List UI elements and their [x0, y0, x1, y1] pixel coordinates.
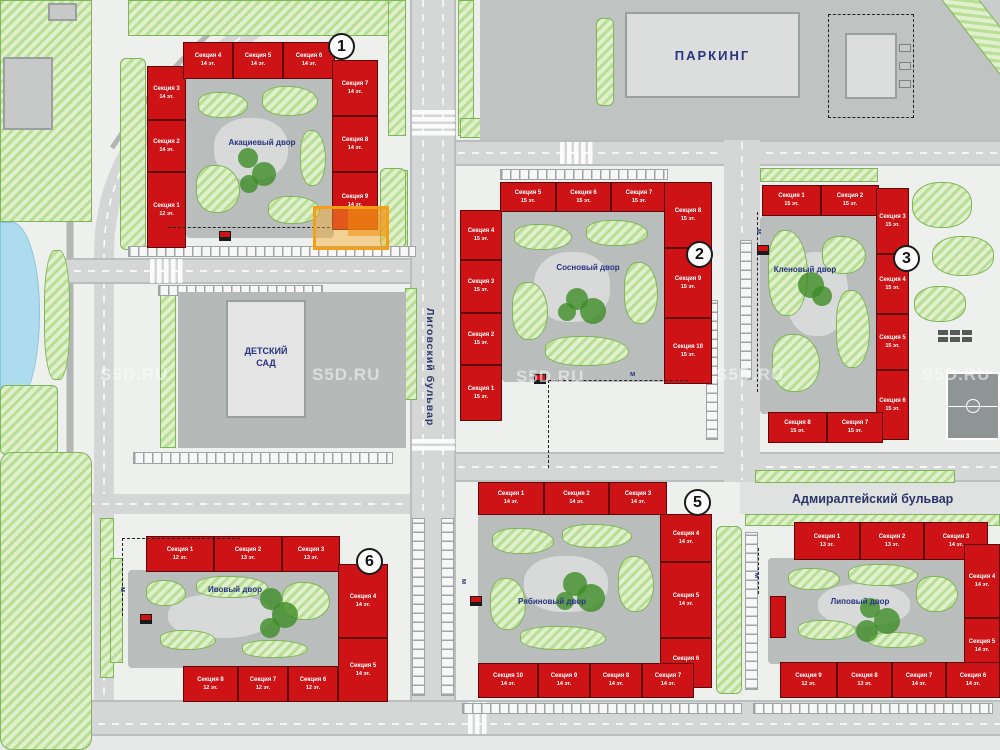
section-floors: 14 эт. — [609, 681, 623, 688]
green-area — [0, 452, 92, 750]
green-area — [492, 528, 554, 554]
section-name: Секция 3 — [879, 214, 906, 222]
building-badge[interactable]: 6 — [356, 548, 383, 575]
building-section[interactable]: Секция 315 эт. — [460, 260, 502, 313]
section-floors: 14 эт. — [966, 681, 980, 688]
green-area — [618, 556, 654, 612]
section-floors: 15 эт. — [790, 428, 804, 435]
section-floors: 15 эт. — [784, 201, 798, 208]
building-badge[interactable]: 1 — [328, 33, 355, 60]
parking-stalls — [441, 518, 454, 696]
section-floors: 13 эт. — [857, 681, 871, 688]
section-name: Секция 5 — [350, 663, 377, 671]
gate-mark: м — [753, 573, 760, 578]
section-name: Секция 1 — [167, 547, 194, 555]
section-floors: 13 эт. — [820, 542, 834, 549]
building-section[interactable]: Секция 714 эт. — [892, 662, 946, 698]
green-area — [120, 58, 146, 250]
green-area — [128, 0, 390, 36]
section-floors: 13 эт. — [241, 555, 255, 562]
green-area — [44, 250, 70, 380]
building-section[interactable]: Секция 514 эт. — [338, 638, 388, 702]
section-floors: 15 эт. — [681, 216, 695, 223]
building-section[interactable]: Секция 814 эт. — [332, 116, 378, 172]
building-section[interactable]: Секция 515 эт. — [876, 314, 909, 370]
green-area — [932, 236, 994, 276]
existing-building — [48, 3, 77, 21]
section-floors: 15 эт. — [681, 284, 695, 291]
master-plan-map: ПАРКИНГ ДЕТСКИЙ САД Акациевый двор Секци… — [0, 0, 1000, 750]
section-floors: 15 эт. — [843, 201, 857, 208]
section-name: Секция 9 — [675, 276, 702, 284]
courtyard-label: Акациевый двор — [222, 138, 302, 148]
building-section[interactable]: Секция 213 эт. — [214, 536, 282, 572]
section-floors: 15 эт. — [885, 285, 899, 292]
section-name: Секция 2 — [468, 332, 495, 340]
section-name: Секция 5 — [515, 190, 542, 198]
section-name: Секция 6 — [296, 53, 323, 61]
building-section[interactable]: Секция 515 эт. — [500, 182, 556, 212]
building-section[interactable]: Секция 614 эт. — [946, 662, 1000, 698]
green-area — [388, 0, 406, 136]
section-floors: 14 эт. — [912, 681, 926, 688]
building-section[interactable]: Секция 514 эт. — [233, 42, 283, 79]
green-area — [242, 640, 308, 658]
watermark: S5D.RU — [100, 365, 168, 385]
section-floors: 14 эт. — [348, 89, 362, 96]
section-floors: 15 эт. — [885, 406, 899, 413]
section-floors: 14 эт. — [348, 145, 362, 152]
section-floors: 15 эт. — [632, 198, 646, 205]
section-floors: 12 эт. — [801, 681, 815, 688]
tree-icon — [260, 618, 280, 638]
section-name: Секция 5 — [673, 593, 700, 601]
green-area — [914, 286, 966, 322]
section-name: Секция 7 — [906, 673, 933, 681]
green-area — [198, 92, 248, 118]
parking-stalls — [745, 532, 758, 690]
building-section[interactable]: Секция 414 эт. — [964, 544, 1000, 618]
section-name: Секция 10 — [673, 344, 703, 352]
section-name: Секция 7 — [842, 420, 869, 428]
building-section[interactable]: Секция 813 эт. — [837, 662, 892, 698]
building-section-stub[interactable] — [770, 596, 786, 638]
building-section[interactable]: Секция 612 эт. — [288, 666, 338, 702]
building-badge[interactable]: 3 — [893, 245, 920, 272]
green-area — [458, 0, 474, 136]
green-area — [912, 182, 972, 228]
section-floors: 14 эт. — [631, 499, 645, 506]
building-section[interactable]: Секция 314 эт. — [147, 66, 186, 120]
section-name: Секция 4 — [969, 574, 996, 582]
section-name: Секция 9 — [342, 194, 369, 202]
building-section[interactable]: Секция 714 эт. — [642, 663, 694, 698]
substation — [757, 245, 769, 255]
section-floors: 13 эт. — [304, 555, 318, 562]
site-boundary — [548, 380, 549, 468]
section-floors: 14 эт. — [949, 542, 963, 549]
parking-stalls — [740, 240, 752, 380]
courtyard-label: Липовый двор — [822, 597, 898, 607]
section-name: Секция 10 — [493, 673, 523, 681]
green-area — [716, 526, 742, 694]
building-section[interactable]: Секция 112 эт. — [146, 536, 214, 572]
section-name: Секция 7 — [342, 81, 369, 89]
green-area — [788, 568, 840, 590]
watermark: S5D.RU — [716, 365, 784, 385]
section-name: Секция 5 — [969, 639, 996, 647]
parking-stalls — [412, 518, 425, 696]
section-floors: 14 эт. — [679, 539, 693, 546]
section-name: Секция 4 — [350, 594, 377, 602]
gate-mark: м — [755, 229, 762, 234]
building-section[interactable]: Секция 815 эт. — [768, 412, 827, 443]
section-name: Секция 2 — [837, 193, 864, 201]
building-section[interactable]: Секция 215 эт. — [821, 185, 879, 216]
section-floors: 12 эт. — [203, 685, 217, 692]
street-label-ligovsky: Лиговский бульвар — [424, 292, 436, 442]
building-section[interactable]: Секция 714 эт. — [332, 60, 378, 116]
section-name: Секция 6 — [570, 190, 597, 198]
building-section[interactable]: Секция 414 эт. — [183, 42, 233, 79]
section-name: Секция 5 — [245, 53, 272, 61]
building-section[interactable]: Секция 314 эт. — [609, 482, 667, 515]
building-section[interactable]: Секция 113 эт. — [794, 522, 860, 560]
section-name: Секция 4 — [673, 531, 700, 539]
building-section[interactable]: Секция 1014 эт. — [478, 663, 538, 698]
existing-building — [3, 57, 53, 130]
section-floors: 15 эт. — [474, 236, 488, 243]
green-area — [916, 576, 958, 612]
section-name: Секция 7 — [626, 190, 653, 198]
section-name: Секция 2 — [563, 491, 590, 499]
green-area — [798, 620, 856, 640]
section-name: Секция 1 — [468, 386, 495, 394]
parking-stalls — [753, 703, 993, 714]
parking-stalls — [462, 703, 742, 714]
green-area — [624, 262, 658, 324]
section-floors: 12 эт. — [256, 685, 270, 692]
site-boundary — [758, 548, 759, 594]
section-floors: 14 эт. — [557, 681, 571, 688]
section-name: Секция 4 — [468, 228, 495, 236]
section-name: Секция 6 — [879, 398, 906, 406]
building-section[interactable]: Секция 114 эт. — [478, 482, 544, 515]
courtyard-label: Кленовый двор — [768, 265, 842, 275]
green-area — [755, 470, 955, 483]
site-boundary — [122, 538, 123, 616]
section-name: Секция 6 — [300, 677, 327, 685]
section-floors: 12 эт. — [173, 555, 187, 562]
building-section[interactable]: Секция 115 эт. — [460, 365, 502, 421]
green-area — [160, 630, 216, 650]
courtyard-label: Рябиновый двор — [512, 597, 592, 607]
building-section[interactable]: Секция 115 эт. — [762, 185, 821, 216]
building-section[interactable]: Секция 213 эт. — [860, 522, 924, 560]
selection-highlight[interactable] — [313, 206, 389, 250]
site-boundary — [122, 538, 240, 539]
service-building — [845, 33, 897, 99]
tree-icon — [812, 286, 832, 306]
section-name: Секция 8 — [851, 673, 878, 681]
section-name: Секция 3 — [468, 279, 495, 287]
section-name: Секция 6 — [960, 673, 987, 681]
section-floors: 15 эт. — [885, 222, 899, 229]
section-floors: 14 эт. — [159, 94, 173, 101]
green-area — [262, 86, 318, 116]
substation — [470, 596, 482, 606]
substation — [140, 614, 152, 624]
building-section[interactable]: Секция 415 эт. — [460, 210, 502, 260]
section-name: Секция 1 — [778, 193, 805, 201]
green-area — [300, 130, 326, 186]
section-name: Секция 8 — [784, 420, 811, 428]
section-floors: 15 эт. — [885, 343, 899, 350]
parking-rows-icon — [938, 330, 978, 342]
section-floors: 14 эт. — [501, 681, 515, 688]
section-floors: 15 эт. — [848, 428, 862, 435]
section-name: Секция 2 — [153, 139, 180, 147]
parking-label: ПАРКИНГ — [640, 48, 785, 63]
gate-mark: м — [119, 587, 126, 592]
section-name: Секция 8 — [603, 673, 630, 681]
section-name: Секция 1 — [153, 203, 180, 211]
building-section[interactable]: Секция 715 эт. — [611, 182, 667, 212]
section-name: Секция 3 — [943, 534, 970, 542]
section-floors: 14 эт. — [975, 582, 989, 589]
section-floors: 14 эт. — [201, 61, 215, 68]
tree-icon — [856, 620, 878, 642]
section-floors: 14 эт. — [975, 647, 989, 654]
section-name: Секция 3 — [153, 86, 180, 94]
tree-icon — [558, 303, 576, 321]
courtyard-label: Сосновый двор — [550, 263, 626, 273]
building-section[interactable]: Секция 815 эт. — [664, 182, 712, 248]
section-floors: 14 эт. — [159, 147, 173, 154]
green-area — [836, 290, 870, 368]
green-area — [545, 336, 629, 366]
section-floors: 15 эт. — [474, 340, 488, 347]
gate-mark: м — [630, 371, 635, 378]
section-name: Секция 7 — [250, 677, 277, 685]
substation — [219, 231, 231, 241]
section-floors: 14 эт. — [504, 499, 518, 506]
green-area — [196, 165, 240, 213]
green-area — [586, 220, 648, 246]
tree-icon — [580, 298, 606, 324]
section-name: Секция 4 — [195, 53, 222, 61]
green-area — [514, 224, 572, 250]
street-label-admiralteysky: Адмиралтейский бульвар — [792, 492, 953, 506]
green-area — [0, 385, 58, 455]
building-section[interactable]: Секция 914 эт. — [538, 663, 590, 698]
building-section[interactable]: Секция 715 эт. — [827, 412, 883, 443]
section-floors: 15 эт. — [681, 352, 695, 359]
section-name: Секция 1 — [814, 534, 841, 542]
section-floors: 14 эт. — [251, 61, 265, 68]
section-name: Секция 9 — [795, 673, 822, 681]
building-section[interactable]: Секция 912 эт. — [780, 662, 837, 698]
section-name: Секция 1 — [498, 491, 525, 499]
building-section[interactable]: Секция 313 эт. — [282, 536, 340, 572]
building-section[interactable]: Секция 414 эт. — [660, 514, 712, 562]
section-name: Секция 3 — [298, 547, 325, 555]
section-name: Секция 4 — [879, 277, 906, 285]
building-section[interactable]: Секция 112 эт. — [147, 172, 186, 248]
section-floors: 14 эт. — [302, 61, 316, 68]
tree-icon — [240, 175, 258, 193]
section-name: Секция 8 — [675, 208, 702, 216]
section-name: Секция 8 — [197, 677, 224, 685]
section-name: Секция 9 — [551, 673, 578, 681]
watermark: S5D.RU — [312, 365, 380, 385]
section-name: Секция 2 — [235, 547, 262, 555]
section-floors: 15 эт. — [474, 394, 488, 401]
section-floors: 14 эт. — [679, 601, 693, 608]
building-section[interactable]: Секция 615 эт. — [556, 182, 611, 212]
building-badge[interactable]: 2 — [686, 241, 713, 268]
section-floors: 13 эт. — [885, 542, 899, 549]
watermark: S5D.RU — [922, 365, 990, 385]
building-section[interactable]: Секция 712 эт. — [238, 666, 288, 702]
watermark: S5D.RU — [516, 367, 584, 387]
building-section[interactable]: Секция 214 эт. — [544, 482, 609, 515]
section-floors: 14 эт. — [356, 671, 370, 678]
section-floors: 14 эт. — [661, 681, 675, 688]
section-name: Секция 7 — [655, 673, 682, 681]
section-name: Секция 3 — [625, 491, 652, 499]
green-area — [760, 168, 878, 182]
section-name: Секция 2 — [879, 534, 906, 542]
section-floors: 14 эт. — [569, 499, 583, 506]
building-section[interactable]: Секция 215 эт. — [460, 313, 502, 365]
section-name: Секция 5 — [879, 335, 906, 343]
gate-mark: м — [460, 579, 467, 584]
section-floors: 12 эт. — [306, 685, 320, 692]
building-section[interactable]: Секция 1015 эт. — [664, 318, 712, 384]
green-area — [562, 524, 632, 548]
green-area — [848, 564, 918, 586]
courtyard-label: Ивовый двор — [195, 585, 275, 595]
section-floors: 15 эт. — [474, 287, 488, 294]
section-floors: 14 эт. — [356, 602, 370, 609]
kindergarten-label: ДЕТСКИЙ САД — [234, 346, 298, 369]
green-area — [520, 626, 606, 650]
section-floors: 15 эт. — [576, 198, 590, 205]
building-section[interactable]: Секция 812 эт. — [183, 666, 238, 702]
building-section[interactable]: Секция 214 эт. — [147, 120, 186, 172]
building-section[interactable]: Секция 814 эт. — [590, 663, 642, 698]
parking-stalls — [133, 452, 393, 464]
green-area — [512, 282, 548, 340]
section-floors: 12 эт. — [159, 211, 173, 218]
green-area — [596, 18, 614, 106]
green-area — [146, 580, 186, 606]
building-section[interactable]: Секция 414 эт. — [338, 564, 388, 638]
building-section[interactable]: Секция 514 эт. — [660, 562, 712, 638]
building-badge[interactable]: 5 — [684, 489, 711, 516]
section-name: Секция 8 — [342, 137, 369, 145]
site-boundary — [168, 227, 330, 228]
green-area — [405, 288, 417, 400]
parking-stalls — [500, 169, 668, 180]
section-floors: 15 эт. — [521, 198, 535, 205]
